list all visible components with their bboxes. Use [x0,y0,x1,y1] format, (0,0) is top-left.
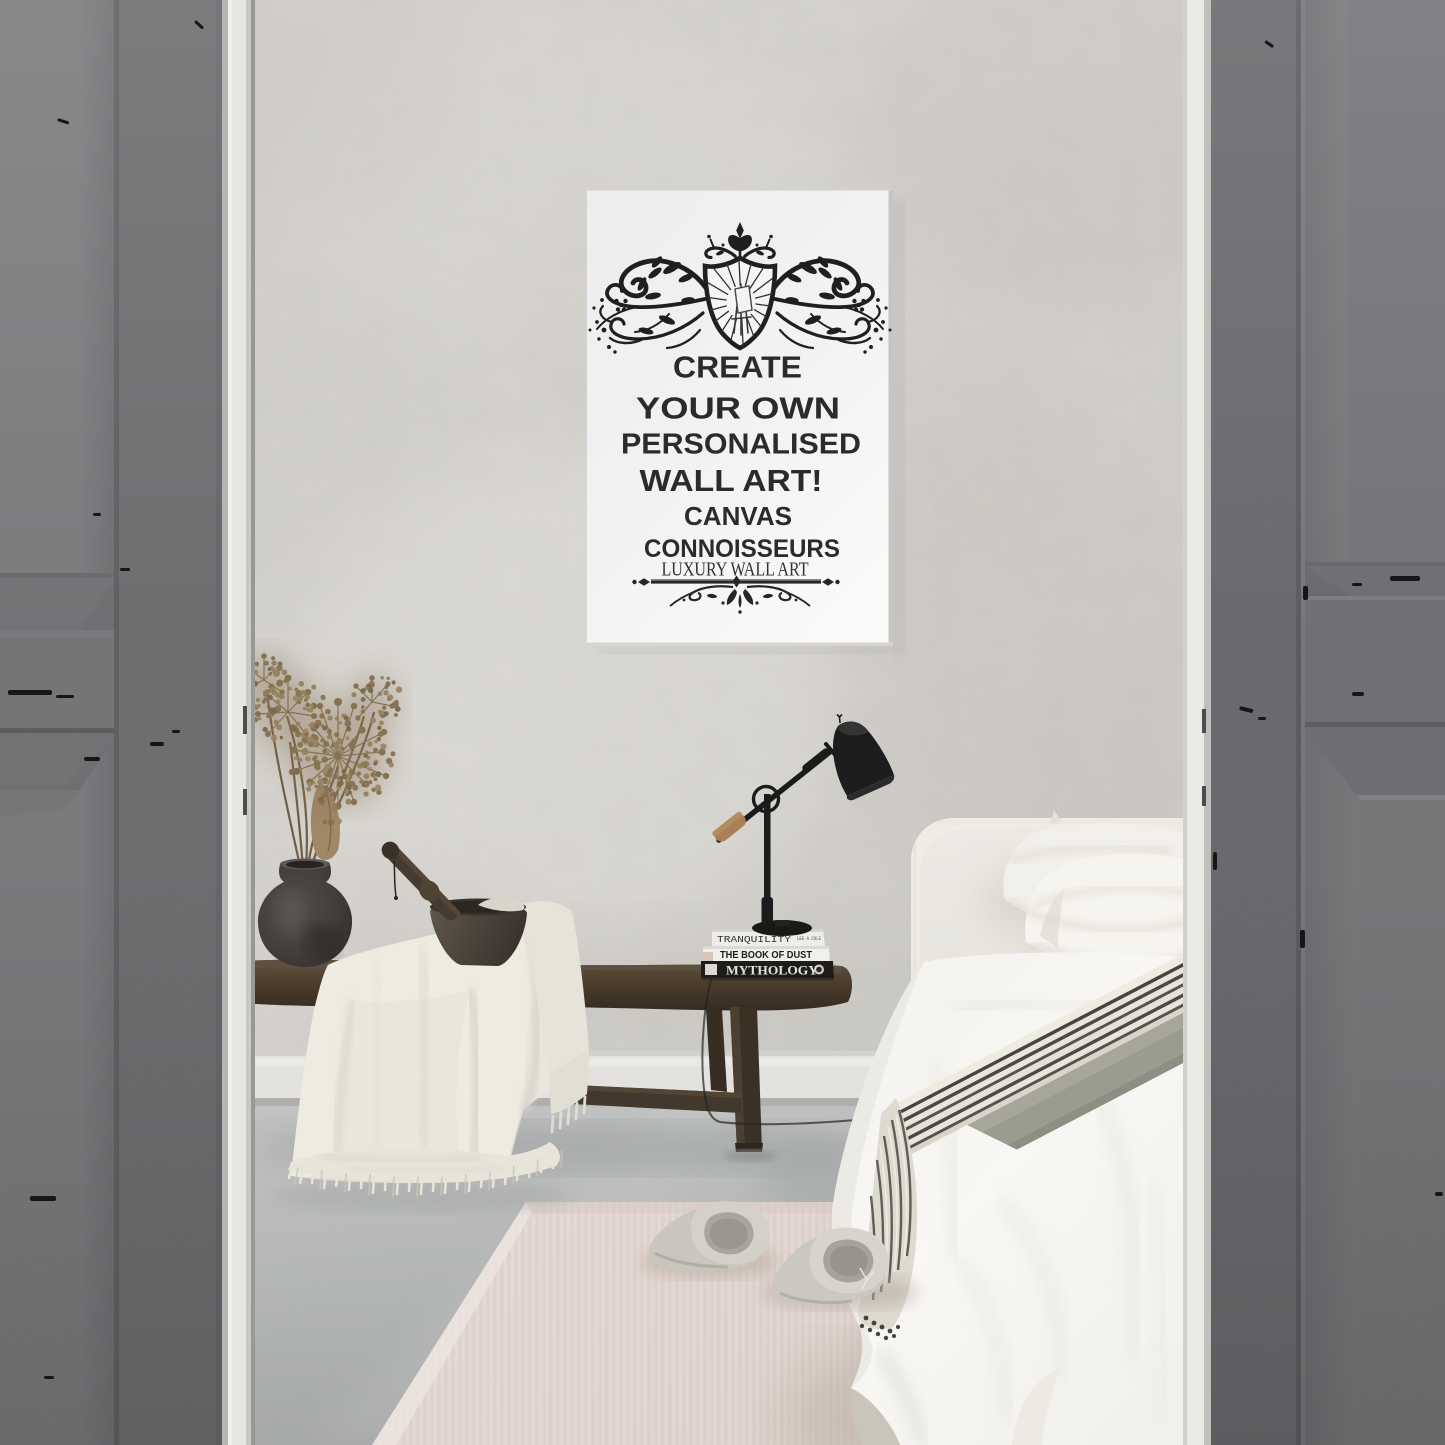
svg-text:THE BOOK OF DUST: THE BOOK OF DUST [720,949,813,961]
svg-text:CANVAS: CANVAS [684,501,792,531]
svg-text:CREATE: CREATE [673,350,802,385]
svg-text:LUXURY WALL ART: LUXURY WALL ART [662,560,809,581]
svg-text:LEE A COLE: LEE A COLE [797,935,822,942]
svg-text:YOUR OWN: YOUR OWN [636,391,840,426]
svg-text:MYTHOLOGY: MYTHOLOGY [726,963,819,978]
svg-text:PERSONALISED: PERSONALISED [621,429,861,461]
svg-text:TRANQUILITY: TRANQUILITY [717,935,792,945]
svg-text:WALL ART!: WALL ART! [640,463,823,498]
